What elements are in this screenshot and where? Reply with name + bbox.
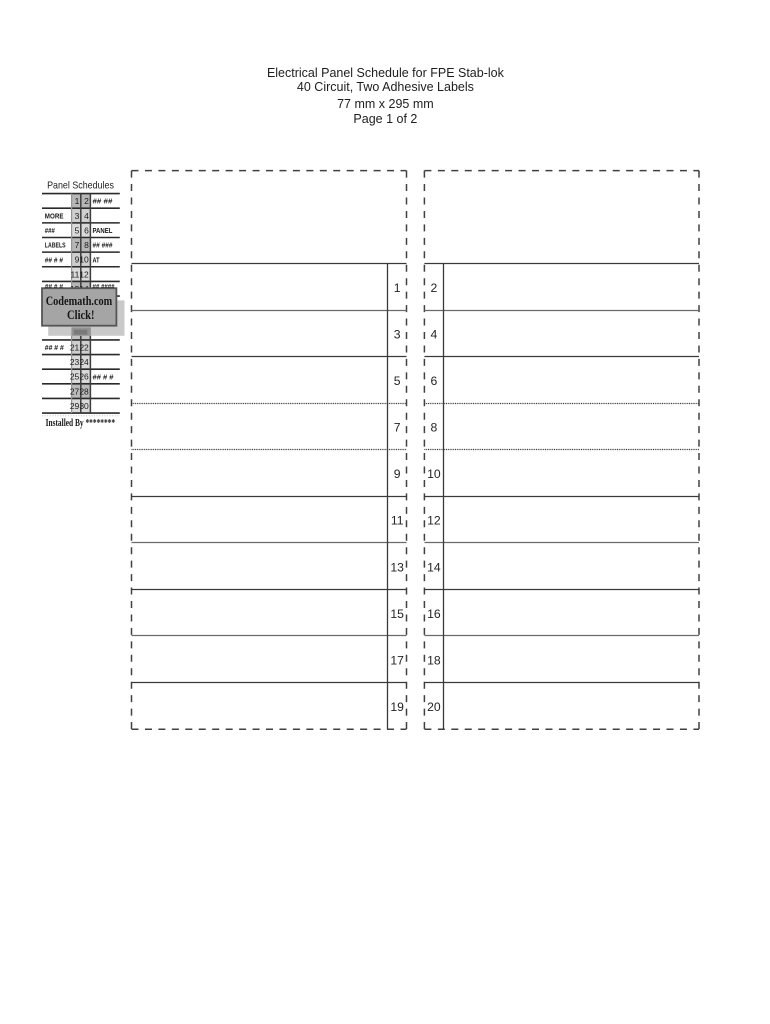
svg-text:7: 7 [75,240,80,250]
svg-text:5: 5 [394,374,401,388]
svg-text:LABELS: LABELS [45,241,66,250]
svg-text:MORE: MORE [45,211,64,220]
svg-text:17: 17 [390,653,404,667]
svg-text:###: ### [45,226,56,235]
svg-text:40 Circuit, Two Adhesive Label: 40 Circuit, Two Adhesive Labels [297,80,474,94]
svg-text:2: 2 [431,281,438,295]
svg-text:## # #: ## # # [45,255,64,264]
svg-text:8: 8 [84,240,89,250]
svg-text:12: 12 [427,514,441,528]
svg-text:## # #: ## # # [45,343,65,352]
svg-text:7: 7 [394,421,401,435]
svg-text:1: 1 [75,196,80,206]
svg-text:10: 10 [79,255,89,265]
svg-text:16: 16 [427,607,441,621]
svg-text:6: 6 [431,374,438,388]
svg-text:30: 30 [79,401,89,411]
svg-text:28: 28 [79,386,89,396]
svg-text:19: 19 [390,700,404,714]
svg-text:21: 21 [70,342,80,352]
svg-text:Page 1 of 2: Page 1 of 2 [353,112,417,126]
svg-text:1: 1 [394,281,401,295]
svg-text:AT: AT [93,255,100,264]
svg-text:77 mm x 295 mm: 77 mm x 295 mm [337,97,434,111]
svg-text:25: 25 [70,372,80,382]
svg-text:23: 23 [70,357,80,367]
svg-text:Click!: Click! [67,307,95,322]
svg-text:Installed By ********: Installed By ******** [46,418,116,429]
svg-text:## ##: ## ## [93,197,114,206]
svg-text:3: 3 [75,211,80,221]
svg-text:## ###: ## ### [93,241,114,250]
svg-text:13: 13 [390,560,404,574]
svg-text:3: 3 [394,328,401,342]
svg-text:Electrical Panel Schedule for: Electrical Panel Schedule for FPE Stab-l… [267,66,505,80]
svg-text:15: 15 [390,607,404,621]
svg-text:12: 12 [79,269,89,279]
svg-text:2: 2 [84,196,89,206]
svg-text:9: 9 [394,467,401,481]
svg-text:PANEL: PANEL [93,226,113,235]
svg-text:24: 24 [79,357,89,367]
svg-text:22: 22 [79,342,89,352]
svg-text:6: 6 [84,225,89,235]
svg-text:4: 4 [84,211,89,221]
svg-text:27: 27 [70,386,80,396]
svg-text:5: 5 [75,225,80,235]
svg-text:18: 18 [427,653,441,667]
svg-text:Panel Schedules: Panel Schedules [47,179,114,191]
svg-text:Codemath.com: Codemath.com [46,293,113,308]
svg-text:4: 4 [431,328,438,342]
svg-text:11: 11 [391,514,404,528]
svg-text:14: 14 [427,560,441,574]
svg-text:26: 26 [79,372,89,382]
svg-text:20: 20 [427,700,441,714]
svg-text:11: 11 [70,269,79,279]
svg-text:29: 29 [70,401,80,411]
svg-text:10: 10 [427,467,441,481]
svg-text:## # #: ## # # [93,372,115,381]
svg-text:8: 8 [431,421,438,435]
